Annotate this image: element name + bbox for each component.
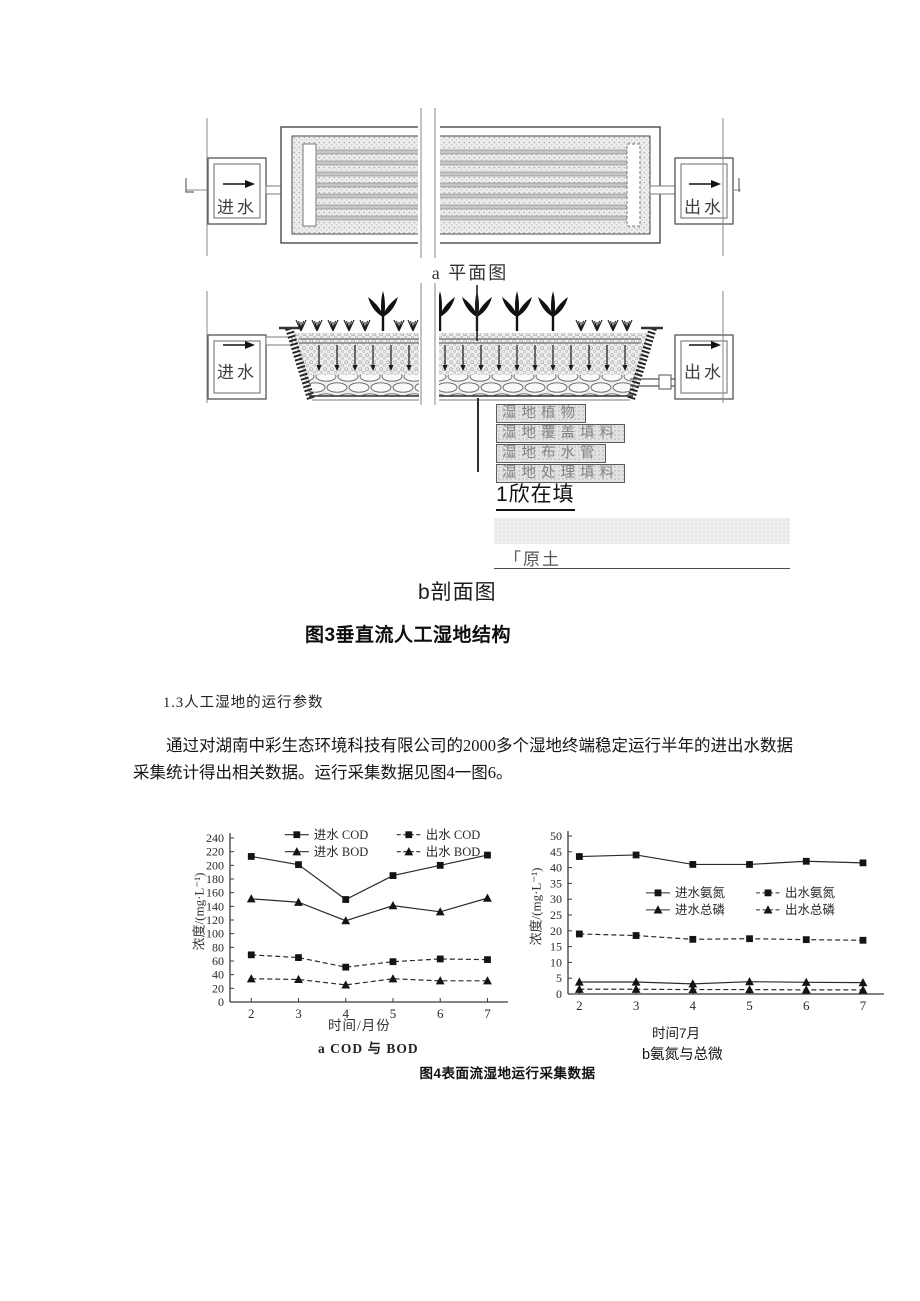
section-caption: b剖面图 [418, 576, 497, 606]
plan-wetland-bed [281, 127, 660, 243]
layer-label-plants: 湿地植物 [496, 404, 586, 423]
section-layer-labels: 湿地植物 湿地覆盖填料 湿地布水管 湿地处理填料 [496, 404, 625, 484]
svg-text:60: 60 [212, 954, 224, 968]
svg-text:出水 COD: 出水 COD [426, 828, 481, 842]
section-view-diagram [183, 283, 743, 405]
svg-text:80: 80 [212, 940, 224, 954]
plan-caption: a 平面图 [410, 259, 530, 285]
chart-cod-bod-ylabel: 浓度/(mg·L⁻¹) [189, 852, 208, 972]
svg-text:0: 0 [556, 987, 562, 1001]
svg-text:120: 120 [206, 913, 224, 927]
svg-text:25: 25 [550, 908, 562, 922]
plan-view-diagram [183, 106, 743, 284]
svg-text:3: 3 [633, 998, 640, 1013]
section-left-feed [207, 291, 292, 403]
svg-text:220: 220 [206, 845, 224, 859]
svg-text:进水氨氮: 进水氨氮 [675, 885, 726, 900]
svg-text:4: 4 [690, 998, 697, 1013]
svg-text:7: 7 [860, 998, 867, 1013]
svg-text:进水 BOD: 进水 BOD [314, 845, 369, 859]
svg-text:200: 200 [206, 858, 224, 872]
svg-text:50: 50 [550, 829, 562, 843]
section-heading: 1.3人工湿地的运行参数 [163, 691, 324, 712]
chart-nh3-tp: 05101520253035404550234567进水氨氮出水氨氮进水总磷出水… [520, 826, 890, 1022]
svg-text:5: 5 [556, 971, 562, 985]
svg-text:2: 2 [576, 998, 583, 1013]
svg-text:6: 6 [437, 1006, 444, 1021]
chart-nh3-tp-xlabel: 时间7月 [652, 1022, 700, 1042]
svg-text:5: 5 [746, 998, 753, 1013]
svg-text:10: 10 [550, 955, 562, 969]
chart-nh3-tp-ylabel: 浓度/(mg·L⁻¹) [526, 847, 545, 967]
svg-text:20: 20 [550, 924, 562, 938]
svg-text:进水 COD: 进水 COD [314, 828, 369, 842]
section-break-lines [419, 283, 439, 405]
svg-text:出水 BOD: 出水 BOD [426, 845, 481, 859]
section-outlet-label: 出水 [678, 358, 730, 383]
svg-text:出水总磷: 出水总磷 [785, 902, 836, 917]
label-leader-line [477, 398, 479, 472]
section-wetland-bed [279, 328, 663, 400]
figure3-title: 图3垂直流人工湿地结构 [298, 620, 518, 647]
layer-label-cover-media: 湿地覆盖填料 [496, 424, 625, 443]
svg-text:180: 180 [206, 872, 224, 886]
section-bed-label: 1欣在填 [496, 478, 575, 511]
svg-text:30: 30 [550, 892, 562, 906]
section-soil-label: 「原土 [494, 550, 561, 569]
section-soil-row: 「原土 [494, 545, 790, 569]
svg-text:7: 7 [484, 1006, 491, 1021]
svg-text:100: 100 [206, 927, 224, 941]
plan-outlet-label: 出水 [678, 193, 730, 218]
figure4-caption: 图4表面流湿地运行采集数据 [415, 1062, 600, 1082]
plan-left-feed [185, 118, 208, 256]
plant-icon [368, 291, 398, 331]
svg-text:40: 40 [212, 968, 224, 982]
svg-text:3: 3 [295, 1006, 302, 1021]
svg-text:140: 140 [206, 899, 224, 913]
document-page: 进水 出水 a 平面图 [0, 0, 920, 1301]
svg-text:20: 20 [212, 981, 224, 995]
chart-nh3-tp-sublabel: b氨氮与总微 [642, 1043, 723, 1064]
svg-text:35: 35 [550, 876, 562, 890]
svg-text:15: 15 [550, 940, 562, 954]
plant-icon [538, 291, 568, 331]
chart-cod-bod-xlabel: 时间/月份 [328, 1014, 391, 1034]
svg-text:160: 160 [206, 886, 224, 900]
layer-label-distribution-pipe: 湿地布水管 [496, 444, 606, 463]
plan-break-lines [418, 108, 440, 258]
svg-text:240: 240 [206, 831, 224, 845]
gravel-layer [309, 375, 633, 396]
section-subgrade-band [494, 518, 790, 544]
chart-cod-bod: 020406080100120140160180200220240234567进… [180, 828, 512, 1028]
plan-inlet-label: 进水 [211, 193, 263, 218]
section-inlet-label: 进水 [211, 358, 263, 383]
plant-icon [502, 291, 532, 331]
wetland-plants [296, 291, 632, 331]
svg-text:0: 0 [218, 995, 224, 1009]
svg-text:2: 2 [248, 1006, 255, 1021]
svg-text:出水氨氮: 出水氨氮 [785, 885, 836, 900]
body-paragraph: 通过对湖南中彩生态环境科技有限公司的2000多个湿地终端稳定运行半年的进出水数据… [133, 732, 793, 786]
svg-text:6: 6 [803, 998, 810, 1013]
svg-text:进水总磷: 进水总磷 [675, 902, 726, 917]
svg-text:40: 40 [550, 861, 562, 875]
svg-text:45: 45 [550, 845, 562, 859]
chart-cod-bod-sublabel: a COD 与 BOD [318, 1037, 419, 1057]
